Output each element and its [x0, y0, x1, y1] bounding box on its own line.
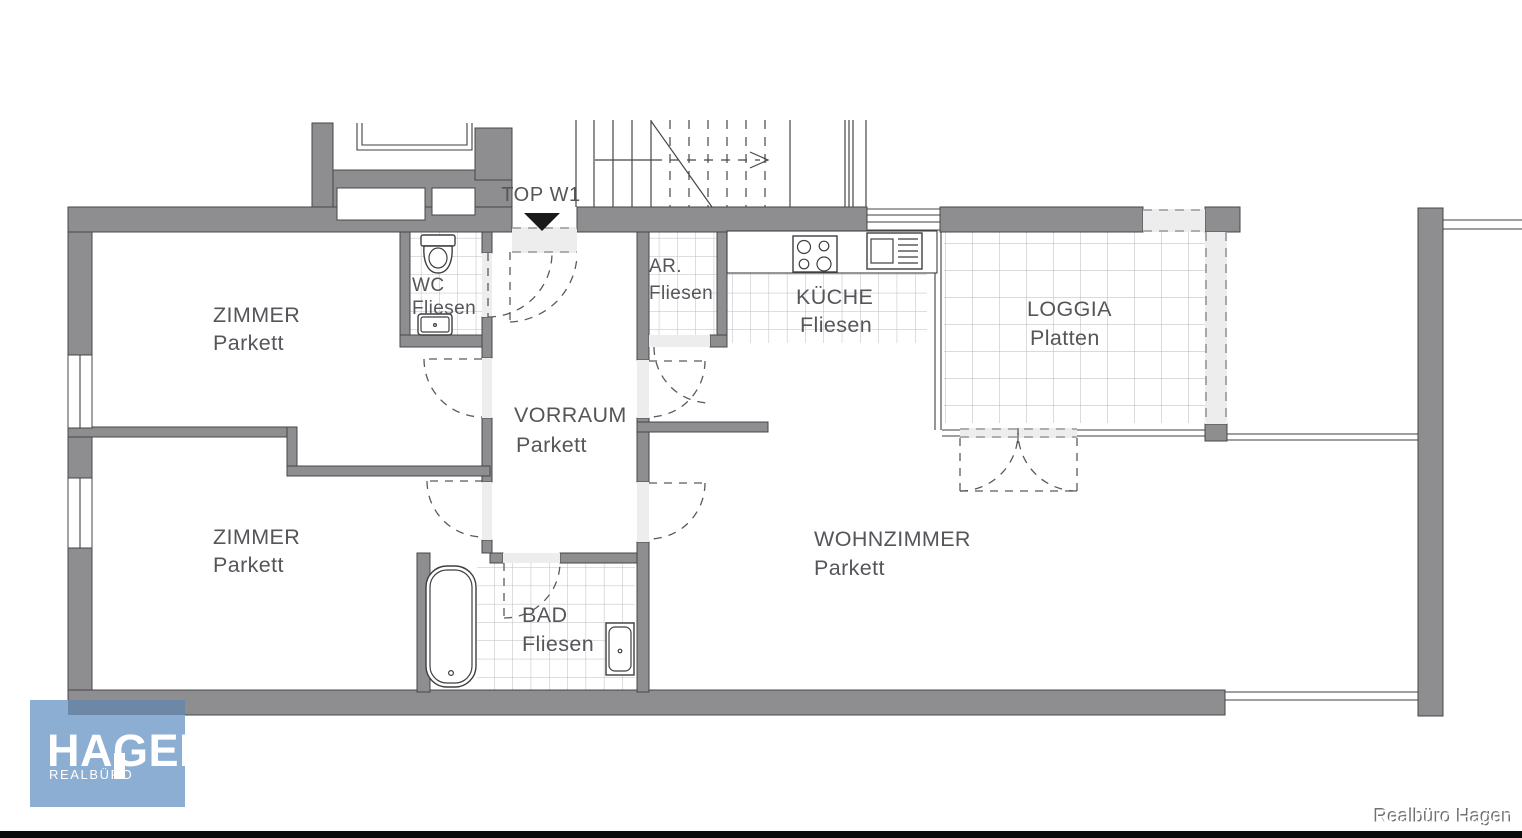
wc-door-arc — [488, 253, 552, 317]
loggia-railing-top — [1143, 209, 1205, 232]
room-label-wc: WC — [412, 275, 444, 296]
floor-label-zimmer-bottom: Parkett — [213, 553, 284, 577]
shaft-cutout-right — [432, 188, 475, 215]
loggia-foot-pier — [1205, 424, 1227, 441]
stair-landing-rail-outer — [357, 123, 472, 150]
floor-label-wohnzimmer: Parkett — [814, 556, 885, 580]
entrance-threshold — [512, 227, 577, 253]
floor-label-wc: Fliesen — [412, 298, 476, 319]
bad-wall-top-a — [490, 553, 503, 563]
wohnzimmer-door-opening — [637, 482, 649, 542]
bad-wall-top-b — [560, 553, 647, 563]
mid-wall-a — [637, 232, 649, 360]
room-label-loggia: LOGGIA — [1027, 297, 1112, 321]
room-label-vorraum: VORRAUM — [514, 403, 627, 427]
floor-label-zimmer-top: Parkett — [213, 331, 284, 355]
entrance: TOP W1 — [501, 184, 581, 253]
zimmer-bottom-door-arc — [427, 481, 483, 537]
outer-wall-far-right — [1418, 208, 1443, 716]
ar-wall-right — [717, 232, 727, 335]
outer-wall-bottom — [68, 690, 1225, 715]
common-wall-left — [312, 123, 333, 207]
shaft-cutout-left — [337, 188, 425, 220]
nook-wall — [637, 422, 768, 432]
entrance-door-arc — [510, 256, 577, 322]
room-label-bad: BAD — [522, 603, 567, 627]
kueche-window — [867, 209, 940, 230]
stair-treads — [576, 120, 866, 207]
common-wall-right — [475, 128, 512, 180]
kueche-door-opening — [637, 360, 649, 418]
bottom-bar — [0, 831, 1522, 838]
logo-wall-overlap — [68, 700, 185, 715]
mid-wall-c — [637, 542, 649, 692]
room-label-zimmer-top: ZIMMER — [213, 303, 300, 327]
ar-door-arc — [654, 347, 710, 403]
bad-door-opening — [503, 553, 560, 563]
room-label-kueche: KÜCHE — [796, 285, 873, 309]
bathtub-icon — [426, 566, 476, 687]
floor-label-loggia: Platten — [1030, 326, 1100, 350]
outer-wall-top-right — [940, 207, 1143, 232]
zimmer-top-door-opening — [482, 358, 492, 418]
wc-wall-left — [400, 232, 410, 335]
sink-icon — [867, 233, 922, 269]
loggia-corner-pier — [1205, 207, 1240, 232]
stair-landing-rail-inner — [362, 123, 467, 145]
ar-wall-foot — [710, 335, 727, 347]
floor-plan-page: TOP W1 — [0, 0, 1522, 838]
entrance-label: TOP W1 — [501, 184, 581, 206]
zimmer-divider-wall-b — [287, 466, 490, 476]
room-label-wohnzimmer: WOHNZIMMER — [814, 527, 971, 551]
stair-break-line — [651, 121, 712, 207]
floor-label-ar: Fliesen — [649, 283, 713, 304]
wohnzimmer-door-arc — [649, 483, 705, 539]
loggia-door-arc-right — [1018, 433, 1077, 491]
vorraum-wall-left-d — [482, 540, 492, 553]
bad-washbasin-icon — [606, 623, 634, 675]
room-label-zimmer-bottom: ZIMMER — [213, 525, 300, 549]
loggia-door-arc-left — [960, 433, 1018, 491]
wc-wall-bottom — [400, 335, 492, 347]
vorraum-wall-left-a — [482, 232, 492, 253]
zimmer-divider-wall-a — [68, 427, 293, 437]
zimmer-bottom-door-opening — [482, 482, 492, 540]
ar-door-opening — [649, 335, 710, 347]
floor-label-bad: Fliesen — [522, 632, 594, 656]
room-label-ar: AR. — [649, 256, 682, 277]
watermark-text: Realbüro Hagen — [1375, 807, 1513, 828]
logo-hagen: HAGEN REALBÜRO — [30, 700, 212, 807]
floor-label-kueche: Fliesen — [800, 313, 872, 337]
outer-wall-top-mid — [577, 207, 867, 232]
zimmer-top-door-arc — [424, 359, 482, 417]
wc-door-opening — [482, 253, 492, 317]
floor-plan-svg: TOP W1 — [0, 0, 1522, 838]
vorraum-wall-left-b — [482, 317, 492, 358]
floor-label-vorraum: Parkett — [516, 433, 587, 457]
outer-wall-left-c — [68, 548, 92, 690]
loggia-railing-right — [1205, 232, 1227, 424]
stove-icon — [793, 236, 837, 272]
logo-g-tail — [114, 753, 125, 779]
kueche-door-arc — [649, 361, 705, 417]
watermark: Realbüro Hagen Realbüro Hagen — [1373, 806, 1513, 829]
